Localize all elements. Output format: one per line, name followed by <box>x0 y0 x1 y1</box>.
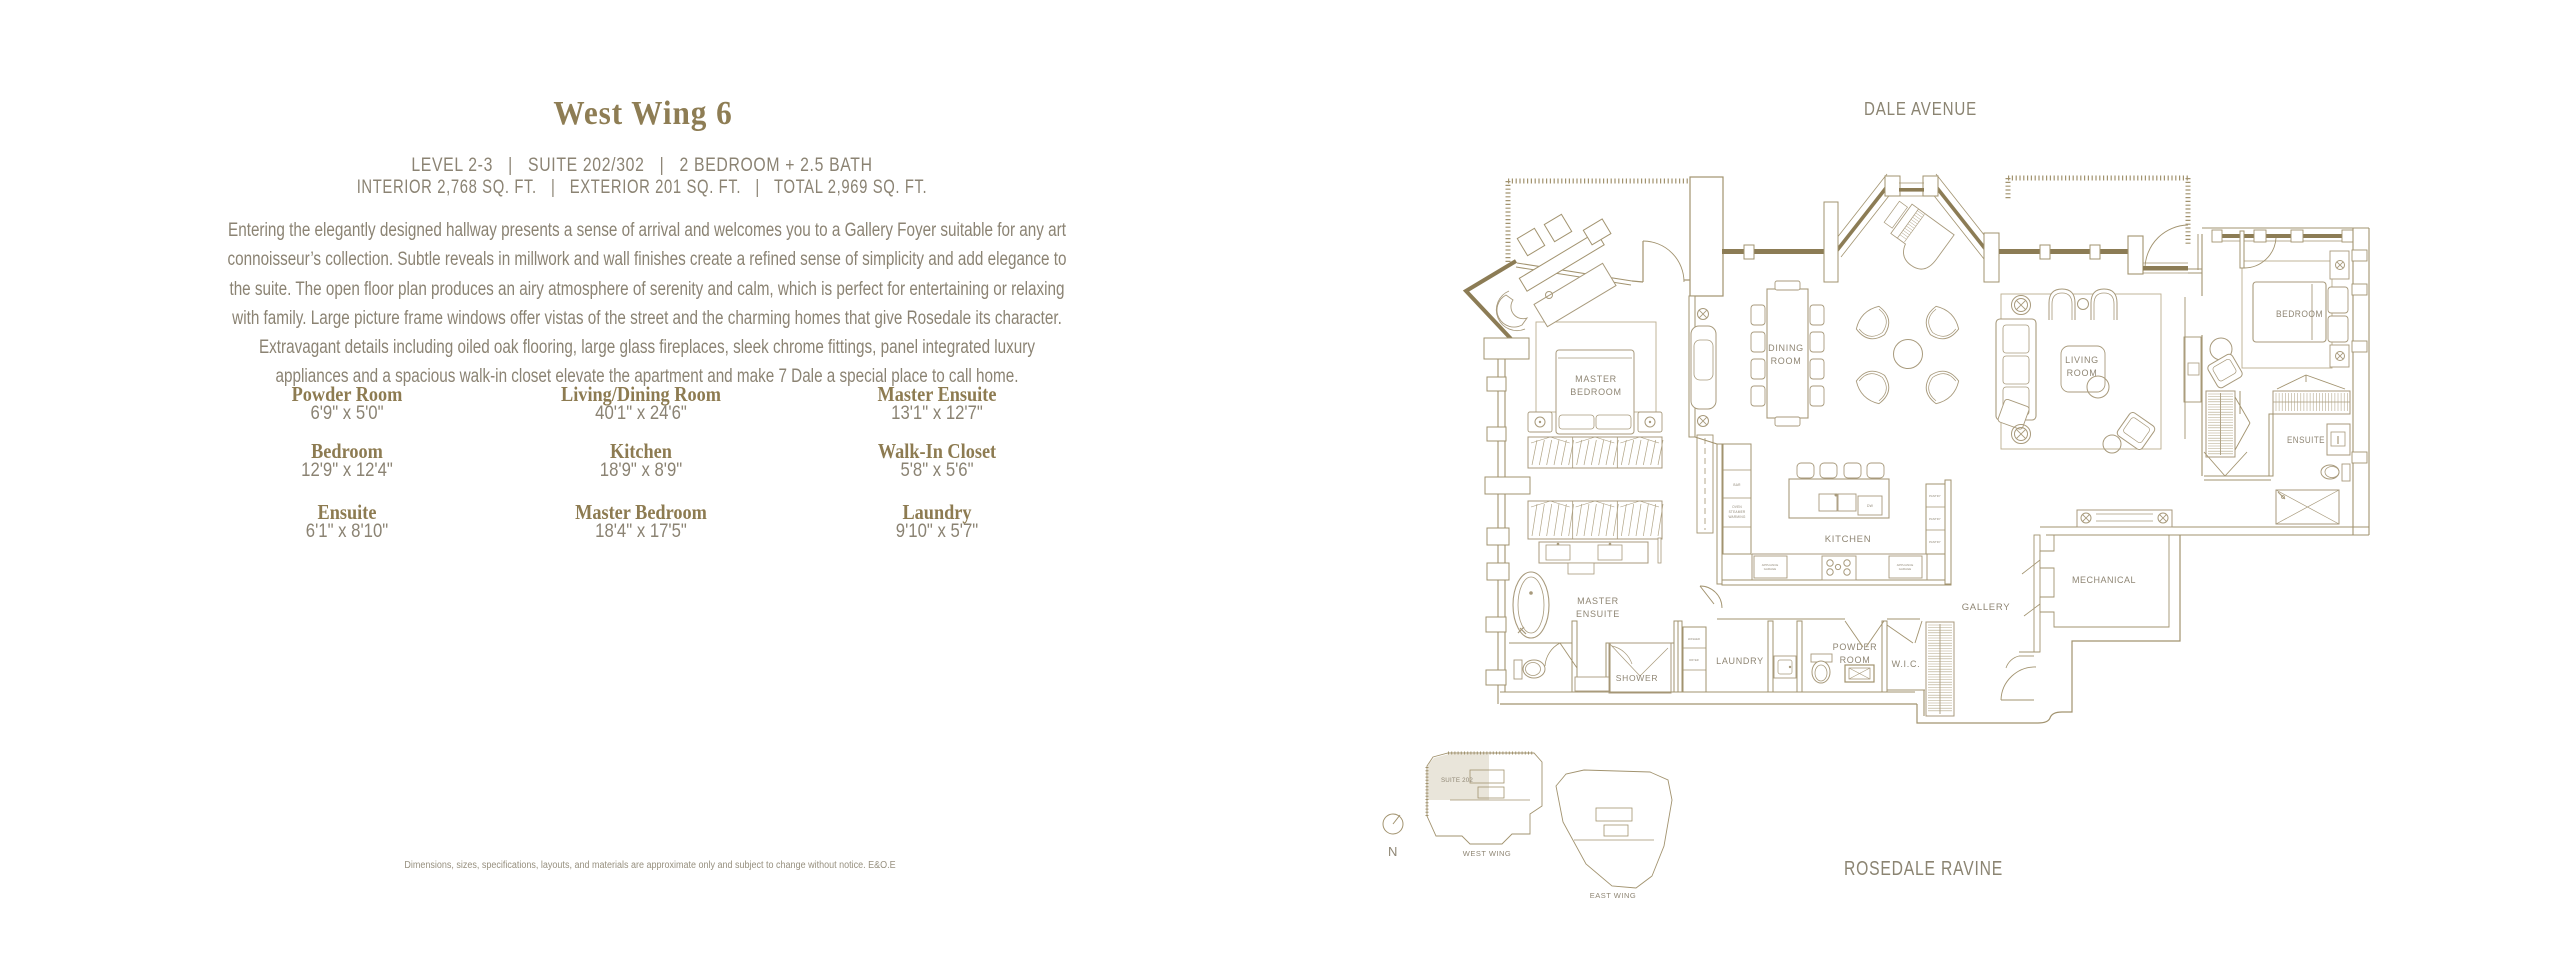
svg-text:DW: DW <box>1867 504 1874 508</box>
svg-text:ENSUITE: ENSUITE <box>2287 435 2325 445</box>
svg-text:ROOM: ROOM <box>1840 655 1871 665</box>
svg-text:MECHANICAL: MECHANICAL <box>2072 575 2136 585</box>
svg-text:SHOWER: SHOWER <box>1616 673 1658 683</box>
svg-text:OVEN: OVEN <box>1732 505 1742 509</box>
svg-text:POWDER: POWDER <box>1833 642 1878 652</box>
svg-text:LAUNDRY: LAUNDRY <box>1716 656 1764 666</box>
svg-text:BAR: BAR <box>1733 483 1741 487</box>
svg-text:MASTER: MASTER <box>1577 596 1619 606</box>
svg-text:DRYER: DRYER <box>1689 658 1699 662</box>
svg-text:ROSEDALE RAVINE: ROSEDALE RAVINE <box>1844 858 2003 880</box>
svg-text:PANTRY: PANTRY <box>1929 494 1941 498</box>
svg-text:GALLERY: GALLERY <box>1962 602 2011 613</box>
svg-text:WEST WING: WEST WING <box>1463 849 1512 858</box>
svg-text:GARAGE: GARAGE <box>1764 567 1777 571</box>
svg-text:DALE AVENUE: DALE AVENUE <box>1864 99 1977 119</box>
svg-text:SUITE 202: SUITE 202 <box>1441 777 1473 784</box>
svg-text:MASTER: MASTER <box>1575 374 1617 384</box>
svg-text:EAST WING: EAST WING <box>1590 891 1636 900</box>
svg-text:W.I.C.: W.I.C. <box>1892 659 1921 669</box>
svg-text:ROOM: ROOM <box>2067 368 2098 378</box>
svg-text:WASHER: WASHER <box>1688 637 1700 641</box>
svg-text:PANTRY: PANTRY <box>1929 517 1941 521</box>
svg-text:PANTRY: PANTRY <box>1929 540 1941 544</box>
svg-text:BEDROOM: BEDROOM <box>1570 387 1621 397</box>
svg-text:BEDROOM: BEDROOM <box>2276 309 2323 319</box>
svg-text:LIVING: LIVING <box>2065 355 2099 365</box>
svg-text:ROOM: ROOM <box>1771 356 1802 366</box>
svg-text:GARAGE: GARAGE <box>1899 567 1912 571</box>
svg-text:DINING: DINING <box>1768 343 1804 353</box>
svg-text:N: N <box>1388 844 1398 859</box>
svg-text:KITCHEN: KITCHEN <box>1825 534 1872 545</box>
svg-text:WARMING: WARMING <box>1728 515 1745 519</box>
svg-text:ENSUITE: ENSUITE <box>1576 609 1620 619</box>
svg-text:STEAMER: STEAMER <box>1729 510 1746 514</box>
